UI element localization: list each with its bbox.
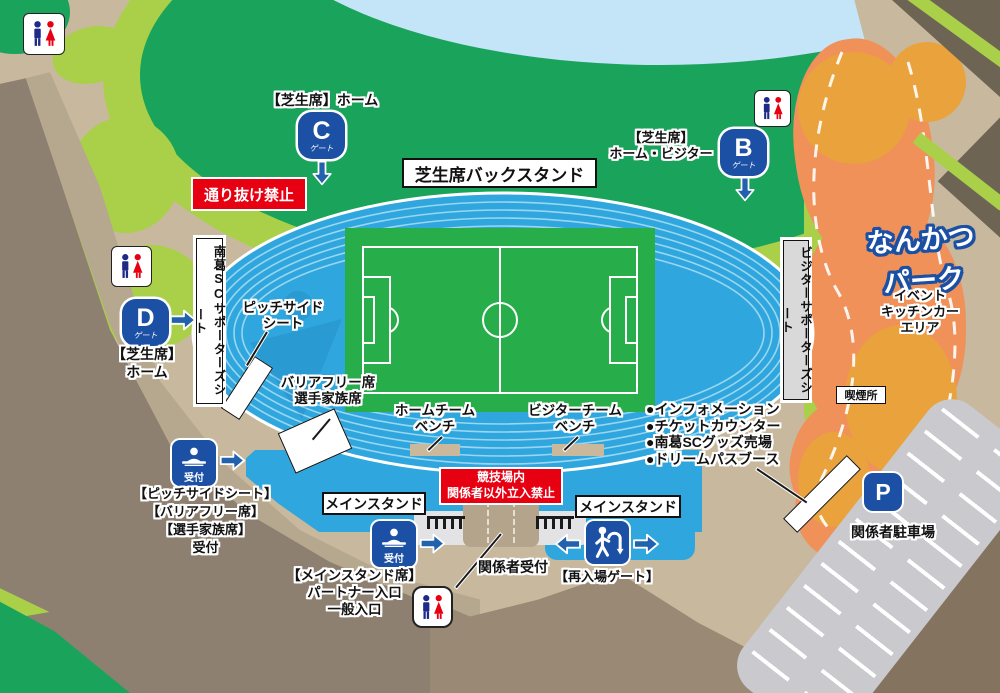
soccer-pitch — [345, 228, 655, 412]
toilet-icon — [111, 246, 152, 287]
arrow-left-icon — [553, 532, 583, 556]
event-kitchen-car-label: イベント キッチンカー エリア — [865, 288, 975, 336]
gate-c-label: 【芝生席】ホーム — [255, 90, 390, 110]
list-item: ●インフォメーション — [646, 401, 780, 418]
pitchside-reception-label: 【ピッチサイドシート】 【バリアフリー席】 【選手家族席】 受付 — [133, 485, 278, 557]
gate-d-label: 【芝生席】 ホーム — [108, 346, 186, 381]
stadium-map: 芝生席バックスタンド 通り抜け禁止 競技場内 関係者以外立入禁止 メインスタンド… — [0, 0, 1000, 693]
visitor-supporters-seat: ビジターサポーターズシート — [783, 240, 809, 400]
nankatsu-supporters-seat: 南葛SCサポーターズシート — [196, 238, 223, 404]
list-item: ●南葛SCグッズ売場 — [646, 434, 780, 451]
parking-icon: P — [864, 473, 902, 511]
list-item: ●チケットカウンター — [646, 418, 780, 435]
restricted-area-sign: 競技場内 関係者以外立入禁止 — [441, 469, 561, 503]
ramp-dashed-line — [487, 501, 489, 543]
visitor-bench-label: ビジターチーム ベンチ — [526, 403, 624, 435]
gate-c: C ゲート — [298, 112, 345, 159]
services-list: ●インフォメーション ●チケットカウンター ●南葛SCグッズ売場 ●ドリームパス… — [646, 401, 780, 467]
no-passage-sign: 通り抜け禁止 — [193, 179, 305, 209]
reception-icon: 受付 — [172, 440, 216, 486]
barrier-free-label: バリアフリー席 選手家族席 — [268, 375, 388, 407]
gate-d: D ゲート — [122, 299, 169, 346]
arrow-right-icon — [418, 531, 447, 556]
arrow-down-icon — [731, 174, 759, 204]
visitor-team-bench — [552, 444, 604, 456]
arrow-right-icon — [168, 307, 198, 333]
main-stand-label-right: メインスタンド — [575, 495, 681, 518]
staff-reception-label: 関係者受付 — [478, 557, 548, 577]
reception-desk-icon — [177, 445, 211, 469]
parking-label: 関係者駐車場 — [833, 522, 953, 542]
arrow-down-icon — [308, 158, 336, 188]
arrow-right-icon — [218, 448, 247, 473]
toilet-icon — [23, 13, 65, 55]
reentry-gate-icon — [586, 521, 629, 564]
main-stand-label-left: メインスタンド — [322, 492, 426, 515]
pitchside-seat-label: ピッチサイド シート — [233, 300, 333, 332]
stairs-icon — [427, 516, 465, 529]
reception-desk-icon — [377, 526, 411, 550]
home-team-bench — [410, 444, 460, 456]
gate-b-label: 【芝生席】 ホーム・ビジター — [605, 130, 717, 163]
home-bench-label: ホームチーム ベンチ — [391, 403, 479, 435]
stairs-icon — [536, 516, 574, 529]
gate-b: B ゲート — [720, 129, 767, 176]
smoking-area-label: 喫煙所 — [836, 386, 886, 404]
reception-icon: 受付 — [372, 521, 416, 567]
reentry-gate-label: 【再入場ゲート】 — [551, 566, 663, 585]
ramp-dashed-line — [513, 501, 515, 543]
back-stand-label-box: 芝生席バックスタンド — [402, 158, 597, 188]
entrance-ramp — [463, 497, 539, 547]
arrow-right-icon — [631, 532, 661, 556]
toilet-icon — [754, 90, 791, 127]
main-stand-reception-label: 【メインスタンド席】 パートナー入口 一般入口 — [282, 567, 427, 618]
list-item: ●ドリームパスブース — [646, 451, 780, 468]
